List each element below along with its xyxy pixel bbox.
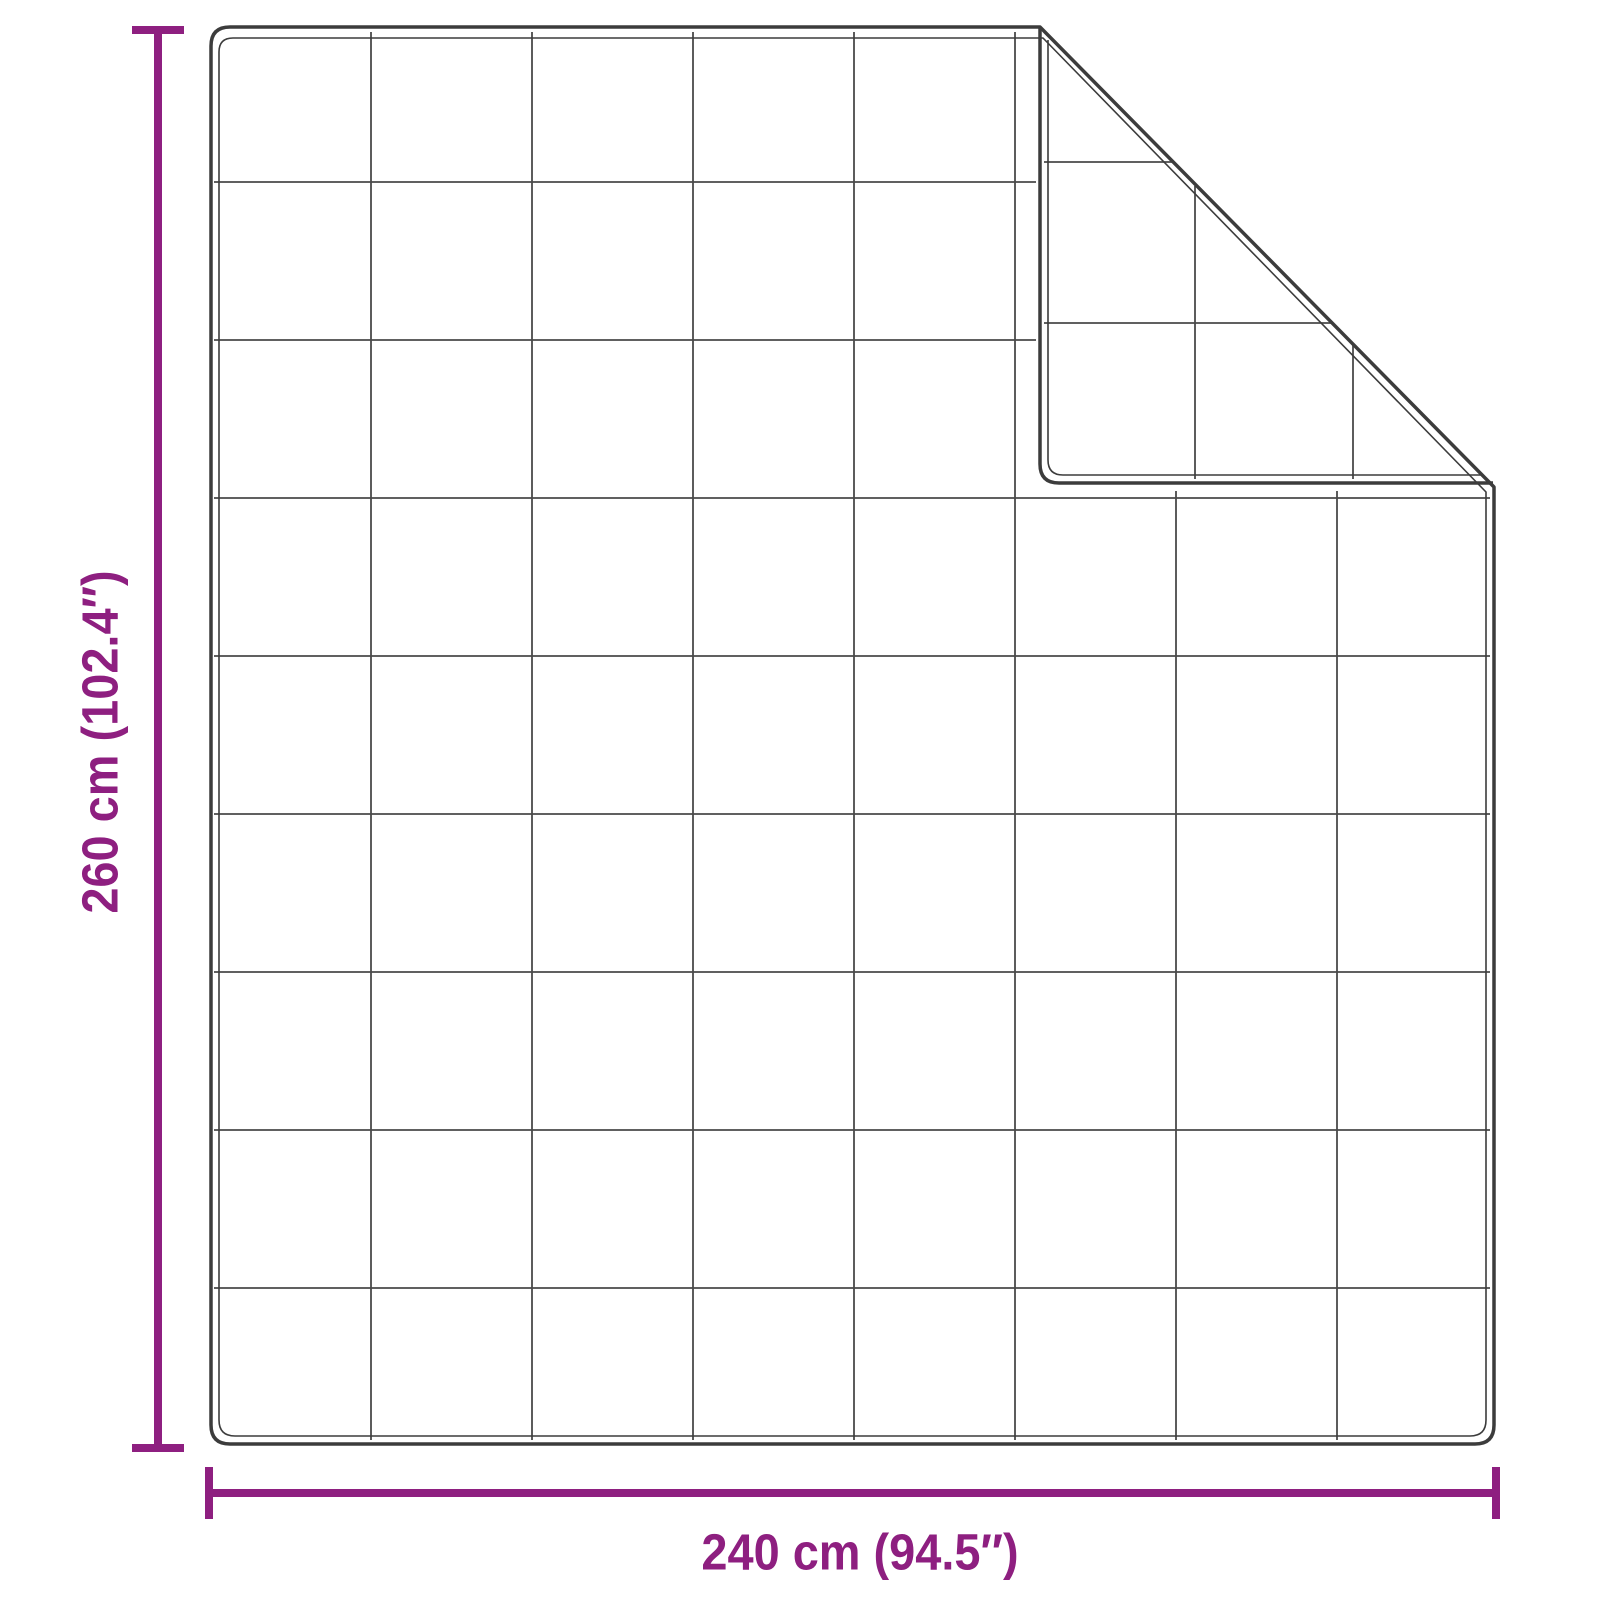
width-dimension-cap-left <box>205 1467 213 1519</box>
height-dimension-bar <box>154 30 162 1448</box>
width-dimension-line <box>205 1467 1500 1519</box>
quilt-grid <box>214 32 1490 1440</box>
height-label: 260 cm (102.4″) <box>71 570 130 913</box>
blanket-outline <box>211 27 1494 1444</box>
fold-flap-grid <box>1044 162 1353 479</box>
height-dimension-line <box>132 26 184 1452</box>
blanket-diagram <box>0 0 1600 1600</box>
product-dimension-diagram: 260 cm (102.4″) 240 cm (94.5″) <box>0 0 1600 1600</box>
width-label: 240 cm (94.5″) <box>701 1523 1018 1582</box>
blanket-outline-inner-hem <box>219 38 1486 1436</box>
width-dimension-bar <box>208 1489 1497 1497</box>
height-dimension-cap-bottom <box>132 1444 184 1452</box>
width-dimension-cap-right <box>1492 1467 1500 1519</box>
height-dimension-cap-top <box>132 26 184 34</box>
